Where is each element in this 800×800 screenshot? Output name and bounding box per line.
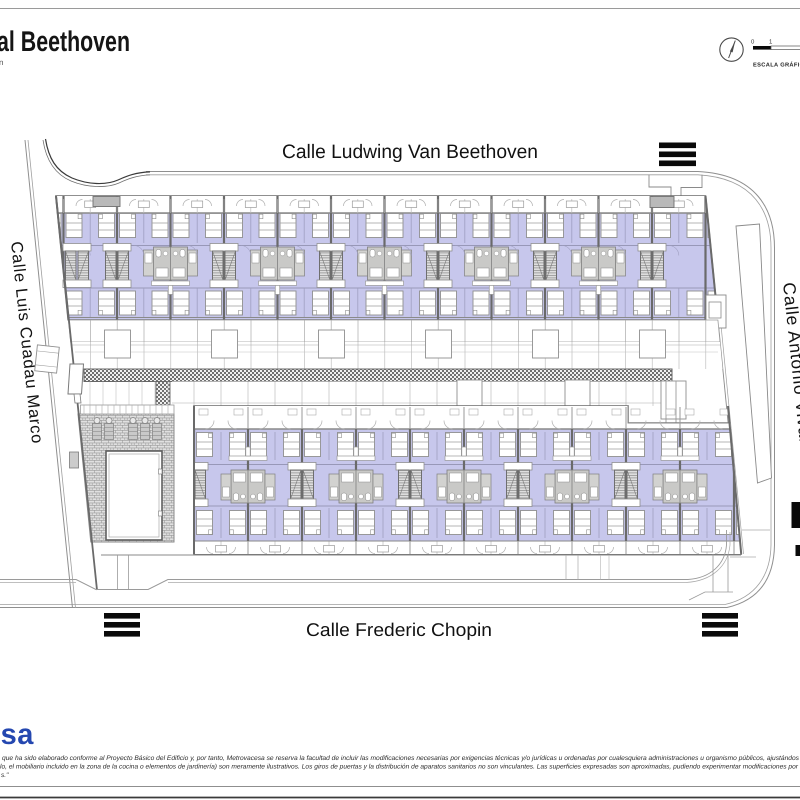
svg-text:metrovacesa: metrovacesa [0, 719, 34, 751]
svg-text:Calle Ludwing Van Beethoven: Calle Ludwing Van Beethoven [282, 141, 538, 163]
svg-text:ESCALA GRÁFICA: ESCALA GRÁFICA [753, 61, 800, 69]
svg-text:Calle Frederic Chopin: Calle Frederic Chopin [306, 619, 492, 640]
svg-text:que ha sido elaborado conforme: que ha sido elaborado conforme al Proyec… [2, 755, 800, 762]
svg-text:s.": s." [1, 772, 9, 779]
svg-text:n: n [0, 58, 3, 67]
svg-text:al Beethoven: al Beethoven [0, 26, 130, 58]
svg-text:lo, el mobiliario incluido en: lo, el mobiliario incluido en la zona de… [0, 764, 799, 771]
